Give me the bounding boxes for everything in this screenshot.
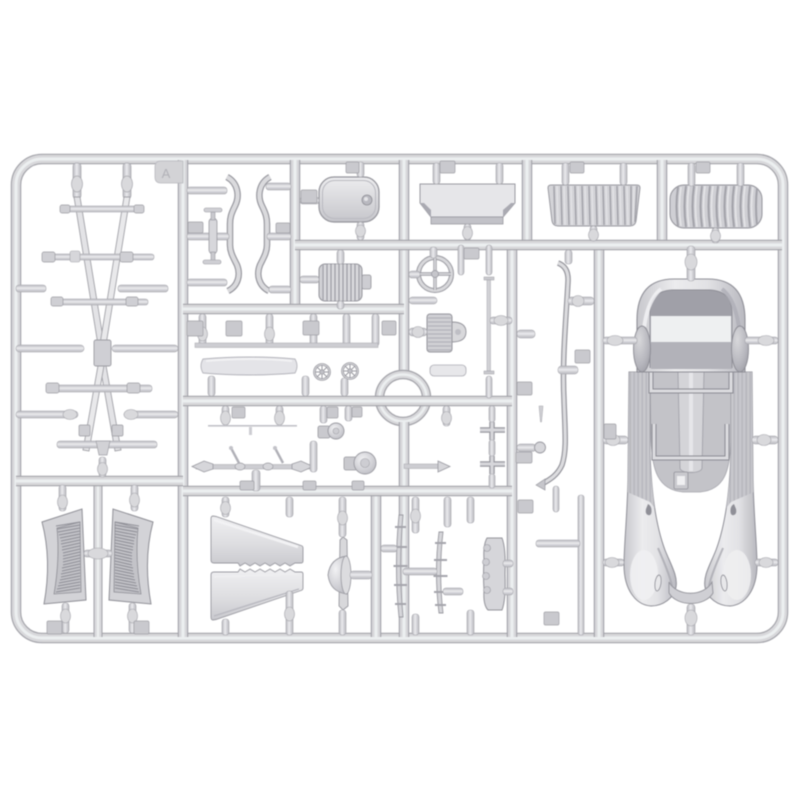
svg-text:A: A bbox=[162, 166, 171, 181]
